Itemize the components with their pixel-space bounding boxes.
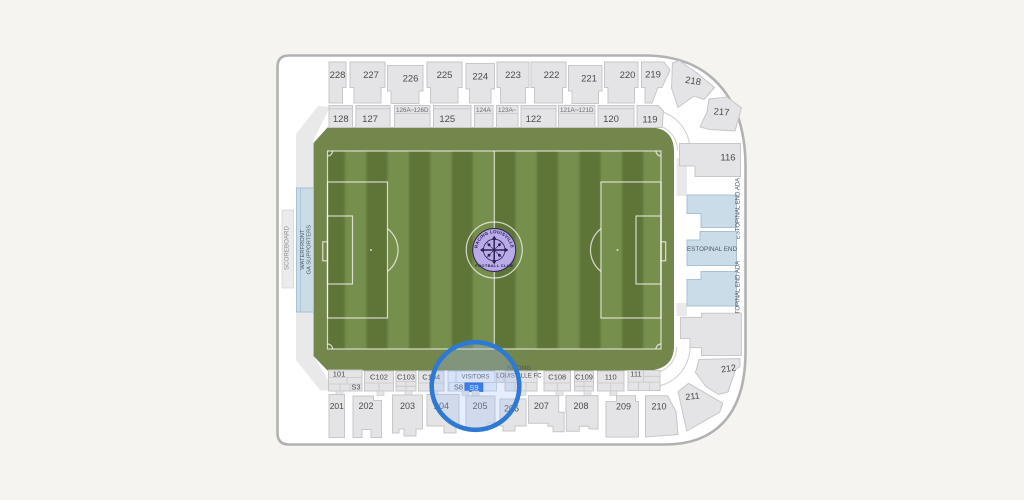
svg-text:207: 207	[534, 401, 549, 411]
svg-text:FOOTBALL CLUB: FOOTBALL CLUB	[475, 263, 513, 268]
svg-text:123A: 123A	[498, 107, 514, 114]
svg-text:221: 221	[581, 73, 597, 84]
svg-text:C103: C103	[397, 372, 415, 381]
svg-text:212: 212	[720, 363, 736, 375]
svg-text:208: 208	[573, 401, 588, 411]
svg-text:ESTOPINAL END: ESTOPINAL END	[687, 246, 737, 253]
svg-text:124A: 124A	[476, 107, 492, 114]
svg-text:ESTOPINAL END ADA: ESTOPINAL END ADA	[736, 178, 742, 239]
svg-text:126D: 126D	[413, 107, 429, 114]
svg-text:127: 127	[362, 114, 378, 125]
svg-text:223: 223	[505, 70, 521, 81]
svg-text:120: 120	[603, 114, 619, 125]
svg-text:220: 220	[620, 70, 636, 81]
svg-text:222: 222	[544, 70, 560, 81]
svg-text:111: 111	[630, 369, 641, 378]
svg-text:211: 211	[685, 391, 700, 402]
svg-text:209: 209	[616, 401, 631, 411]
svg-text:228: 228	[330, 70, 346, 81]
svg-text:210: 210	[651, 401, 666, 411]
svg-text:C102: C102	[370, 372, 388, 381]
svg-text:224: 224	[472, 71, 488, 82]
svg-text:126A: 126A	[396, 107, 412, 114]
svg-text:110: 110	[605, 372, 617, 381]
svg-text:219: 219	[645, 70, 661, 81]
svg-text:GA SUPPORTERS: GA SUPPORTERS	[306, 225, 312, 275]
svg-text:225: 225	[437, 70, 453, 81]
svg-text:SCOREBOARD: SCOREBOARD	[284, 225, 291, 270]
svg-text:WATERFRONT: WATERFRONT	[300, 229, 306, 270]
svg-text:201: 201	[330, 401, 344, 411]
svg-text:128: 128	[333, 114, 349, 125]
svg-text:101: 101	[333, 369, 346, 378]
svg-text:119: 119	[642, 115, 657, 126]
svg-text:C108: C108	[548, 372, 566, 381]
svg-text:121A: 121A	[560, 107, 576, 114]
svg-text:C109: C109	[575, 372, 593, 381]
svg-text:125: 125	[439, 114, 455, 125]
svg-text:217: 217	[713, 106, 730, 118]
svg-text:116: 116	[720, 153, 735, 164]
svg-text:226: 226	[403, 73, 419, 84]
svg-text:122: 122	[526, 114, 542, 125]
svg-text:S3: S3	[351, 382, 360, 391]
svg-text:203: 203	[400, 401, 415, 411]
svg-text:121D: 121D	[578, 107, 594, 114]
svg-text:227: 227	[363, 70, 379, 81]
svg-text:202: 202	[358, 401, 373, 411]
